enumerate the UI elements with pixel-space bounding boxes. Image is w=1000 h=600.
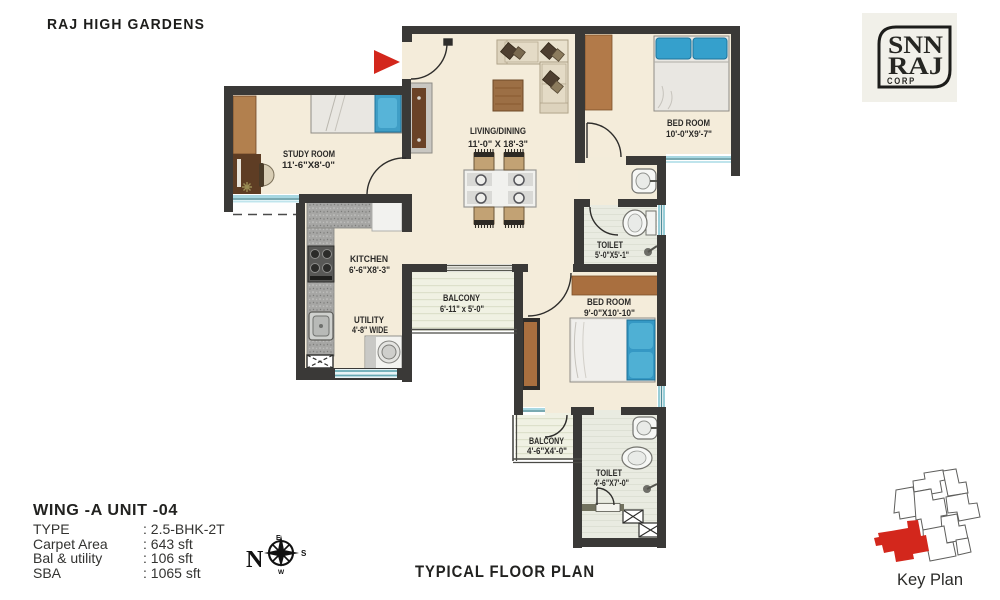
svg-text:6'-6"X8'-3": 6'-6"X8'-3" bbox=[349, 265, 390, 276]
svg-text:: 1065 sft: : 1065 sft bbox=[143, 565, 201, 581]
svg-text:4'-8" WIDE: 4'-8" WIDE bbox=[352, 325, 388, 335]
svg-text:WING -A UNIT -04: WING -A UNIT -04 bbox=[33, 502, 178, 519]
svg-text:BED ROOM: BED ROOM bbox=[667, 118, 710, 129]
svg-text:10'-0"X9'-7": 10'-0"X9'-7" bbox=[666, 129, 712, 140]
svg-text:BALCONY: BALCONY bbox=[443, 293, 480, 303]
svg-text:W: W bbox=[278, 569, 285, 576]
svg-text:KITCHEN: KITCHEN bbox=[350, 254, 388, 265]
svg-text:SBA: SBA bbox=[33, 565, 62, 581]
svg-text:UTILITY: UTILITY bbox=[354, 315, 384, 325]
svg-text:: 2.5-BHK-2T: : 2.5-BHK-2T bbox=[143, 521, 225, 537]
svg-text:TYPE: TYPE bbox=[33, 521, 70, 537]
svg-text:Bal & utility: Bal & utility bbox=[33, 550, 102, 566]
svg-text:E: E bbox=[276, 535, 281, 542]
svg-text:4'-6"X4'-0": 4'-6"X4'-0" bbox=[527, 446, 567, 456]
svg-text:BED ROOM: BED ROOM bbox=[587, 297, 631, 308]
svg-text:11'-0" X 18'-3": 11'-0" X 18'-3" bbox=[468, 139, 528, 150]
svg-text:11'-6"X8'-0": 11'-6"X8'-0" bbox=[282, 160, 335, 171]
svg-text:S: S bbox=[301, 549, 307, 558]
svg-text:Key Plan: Key Plan bbox=[897, 570, 963, 589]
svg-text:6'-11" x 5'-0": 6'-11" x 5'-0" bbox=[440, 304, 484, 314]
svg-text:: 106 sft: : 106 sft bbox=[143, 550, 193, 566]
svg-text:N: N bbox=[246, 547, 264, 573]
svg-text:RAJ HIGH GARDENS: RAJ HIGH GARDENS bbox=[47, 16, 205, 33]
svg-text:TOILET: TOILET bbox=[596, 468, 622, 478]
svg-text:9'-0"X10'-10": 9'-0"X10'-10" bbox=[584, 308, 635, 319]
svg-text:4'-6"X7'-0": 4'-6"X7'-0" bbox=[594, 478, 629, 488]
svg-text:STUDY ROOM: STUDY ROOM bbox=[283, 149, 335, 160]
svg-text:TOILET: TOILET bbox=[597, 240, 623, 250]
svg-text:TYPICAL FLOOR PLAN: TYPICAL FLOOR PLAN bbox=[415, 563, 595, 581]
svg-text:LIVING/DINING: LIVING/DINING bbox=[470, 126, 526, 137]
svg-text:CORP: CORP bbox=[887, 76, 916, 86]
svg-text:5'-0"X5'-1": 5'-0"X5'-1" bbox=[595, 250, 629, 260]
